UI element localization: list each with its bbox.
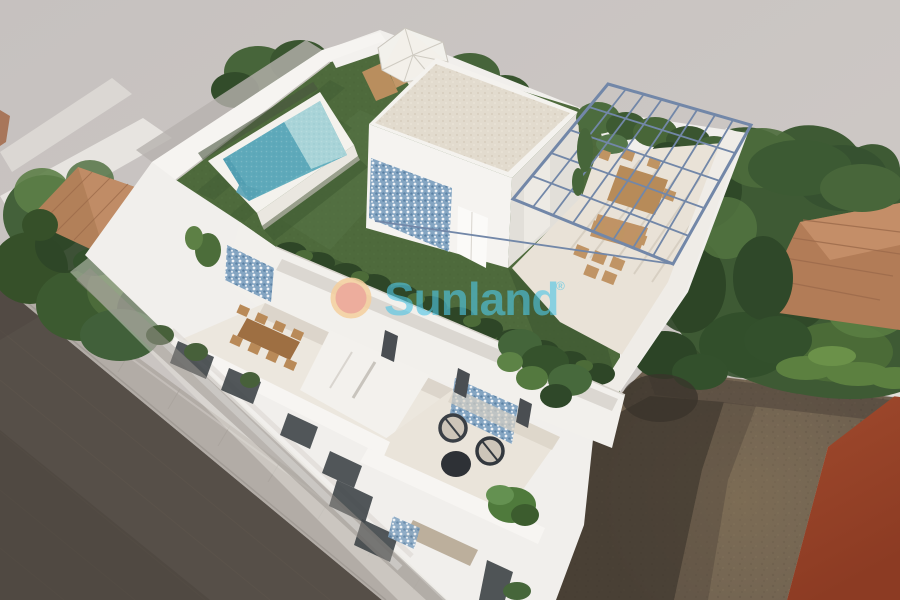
svg-text:Sunland: Sunland [384, 273, 558, 325]
svg-text:®: ® [556, 279, 565, 293]
